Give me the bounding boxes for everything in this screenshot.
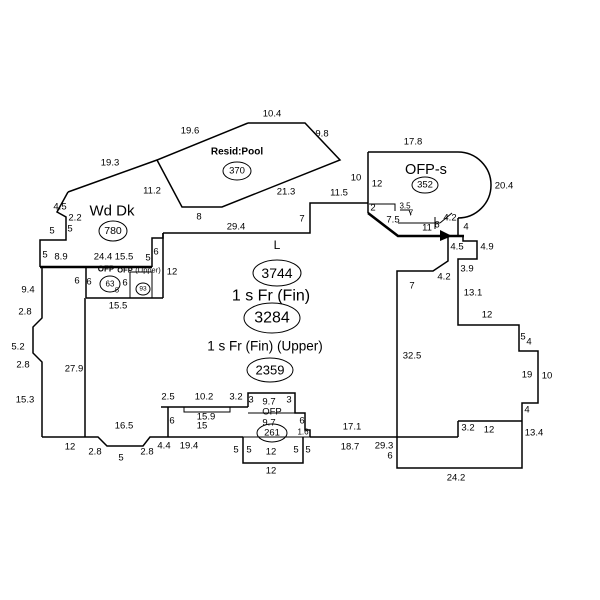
dimension-label: 2.2 xyxy=(68,213,81,224)
area-label-upper-floor: 1 s Fr (Fin) (Upper) xyxy=(207,339,323,354)
dimension-label: 12 xyxy=(484,425,495,436)
dimension-label: 15.3 xyxy=(16,395,35,406)
area-label-resid-pool: Resid:Pool xyxy=(211,147,263,158)
dimension-label: 5 xyxy=(305,445,310,456)
dimension-label: 27.9 xyxy=(65,364,84,375)
area-label-ofp-s: OFP-s xyxy=(405,162,447,178)
dimension-label: 7 xyxy=(409,209,414,218)
direction-arrow xyxy=(440,230,452,241)
dimension-label: 10.2 xyxy=(195,392,214,403)
dimension-label: 5 xyxy=(118,453,123,464)
dimension-label: 10.4 xyxy=(263,109,282,120)
area-label-wd-dk: Wd Dk xyxy=(90,203,136,220)
dimension-label: 16.5 xyxy=(115,421,134,432)
dimension-label: 17.8 xyxy=(404,137,423,148)
dimension-label: 3.2 xyxy=(461,423,474,434)
dimension-label: 6 xyxy=(387,451,392,462)
dimension-label: 19.3 xyxy=(101,158,120,169)
dimension-label: 7 xyxy=(299,214,304,225)
area-label-ofp-left-upper: (Upper) xyxy=(135,266,161,275)
dimension-label: 24.4 xyxy=(94,252,113,263)
dimension-label: 11 xyxy=(422,223,432,234)
area-label-living-code: L xyxy=(274,238,281,252)
floorplan-sketch: 3707803523744328423596393261Resid:PoolWd… xyxy=(0,0,600,600)
dimension-label: 4.2 xyxy=(437,272,450,283)
floorplan-sketch-page: 3707803523744328423596393261Resid:PoolWd… xyxy=(0,0,600,600)
dimension-label: 13.1 xyxy=(464,288,483,299)
circled-area-261: 261 xyxy=(264,428,280,439)
dimension-label: 15 xyxy=(197,421,208,432)
dimension-label: 4.5 xyxy=(450,242,463,253)
dimension-label: 3.9 xyxy=(460,264,473,275)
dimension-label: 29.4 xyxy=(227,222,246,233)
dimension-label: 3.2 xyxy=(229,392,242,403)
dimension-label: 6 xyxy=(86,277,91,288)
dimension-label: 12 xyxy=(266,466,277,477)
circled-area-2359: 2359 xyxy=(256,363,285,378)
dimension-label: 32.5 xyxy=(403,351,422,362)
dimension-label: 3 xyxy=(286,395,291,406)
dimension-label: 7 xyxy=(409,281,414,292)
dimension-label: 15.5 xyxy=(109,301,128,312)
dimension-label: 3 xyxy=(248,395,253,406)
dimension-label: 4 xyxy=(526,337,531,348)
area-label-ofp-left-2: OFP xyxy=(117,266,132,275)
circled-area-63: 63 xyxy=(106,280,115,289)
dimension-label: 4.2 xyxy=(443,213,456,224)
dimension-label: 9.7 xyxy=(262,418,275,429)
circled-area-780: 780 xyxy=(104,225,122,237)
dimension-label: 5 xyxy=(67,224,72,235)
dimension-label: 5 xyxy=(246,445,251,456)
dimension-label: 12 xyxy=(266,447,277,458)
dimension-label: 18.7 xyxy=(341,442,360,453)
dimension-label: 13.4 xyxy=(525,428,544,439)
sketch-curved-wall xyxy=(458,152,491,218)
circled-area-352: 352 xyxy=(417,180,433,191)
dimension-label: 2.8 xyxy=(140,447,153,458)
dimension-label: 5 xyxy=(520,332,525,343)
dimension-label: 2.8 xyxy=(88,447,101,458)
dimension-label: 10 xyxy=(351,173,362,184)
dimension-label: 4.5 xyxy=(53,202,66,213)
dimension-label: 12 xyxy=(372,179,383,190)
dimension-label: 6 xyxy=(169,416,174,427)
dimension-label: 8.9 xyxy=(54,252,67,263)
area-label-ofp-left: OFP xyxy=(98,265,115,274)
dimension-label: 11.2 xyxy=(143,186,161,197)
dimension-label: 9.7 xyxy=(262,397,275,408)
dimension-label: 19 xyxy=(522,370,533,381)
circled-area-3744: 3744 xyxy=(261,265,292,281)
dimension-label: 5.2 xyxy=(11,342,24,353)
dimension-label: 9.4 xyxy=(21,285,34,296)
dimension-label: 10 xyxy=(542,371,553,382)
dimension-label: 4.4 xyxy=(157,441,170,452)
circled-area-370: 370 xyxy=(229,166,245,177)
dimension-label: 11.5 xyxy=(330,188,348,199)
dimension-label: 12 xyxy=(65,442,76,453)
dimension-label: 17.1 xyxy=(343,422,362,433)
dimension-label: 2.8 xyxy=(18,307,31,318)
dimension-label: 4.9 xyxy=(480,242,493,253)
dimension-label: 24.2 xyxy=(447,473,466,484)
dimension-label: 8 xyxy=(196,212,201,223)
dimension-label: 12 xyxy=(167,267,178,278)
dimension-label: 6 xyxy=(299,416,304,427)
dimension-label: 5 xyxy=(115,286,119,295)
dimension-label: 15.5 xyxy=(115,252,134,263)
dimension-label: 5 xyxy=(233,445,238,456)
area-label-ofp-bottom: OFP xyxy=(262,407,282,418)
dimension-label: 4 xyxy=(524,405,529,416)
dimension-label: 9.8 xyxy=(315,129,328,140)
dimension-label: 5 xyxy=(145,253,150,264)
dimension-label: 12 xyxy=(482,310,493,321)
dimension-label: 7.5 xyxy=(386,215,399,226)
area-label-first-floor: 1 s Fr (Fin) xyxy=(232,288,310,305)
dimension-label: 6 xyxy=(153,247,158,258)
dimension-label: 20.4 xyxy=(495,181,514,192)
dimension-label: 19.6 xyxy=(181,126,200,137)
dimension-label: 6 xyxy=(434,220,439,231)
dimension-label: 4 xyxy=(463,222,468,233)
dimension-label: 2.5 xyxy=(161,392,174,403)
circled-area-3284: 3284 xyxy=(254,310,290,327)
dimension-label: 6 xyxy=(74,276,79,287)
circled-area-93: 93 xyxy=(139,286,147,293)
dimension-label: 1.6 xyxy=(297,428,309,437)
dimension-label: 2.8 xyxy=(16,360,29,371)
dimension-label: 19.4 xyxy=(180,441,199,452)
dimension-label: 21.3 xyxy=(277,187,296,198)
dimension-label: 5 xyxy=(49,226,54,237)
dimension-label: 2 xyxy=(370,203,375,214)
dimension-label: 5 xyxy=(42,250,47,261)
dimension-label: 5 xyxy=(293,445,298,456)
dimension-label: 6 xyxy=(122,278,127,289)
